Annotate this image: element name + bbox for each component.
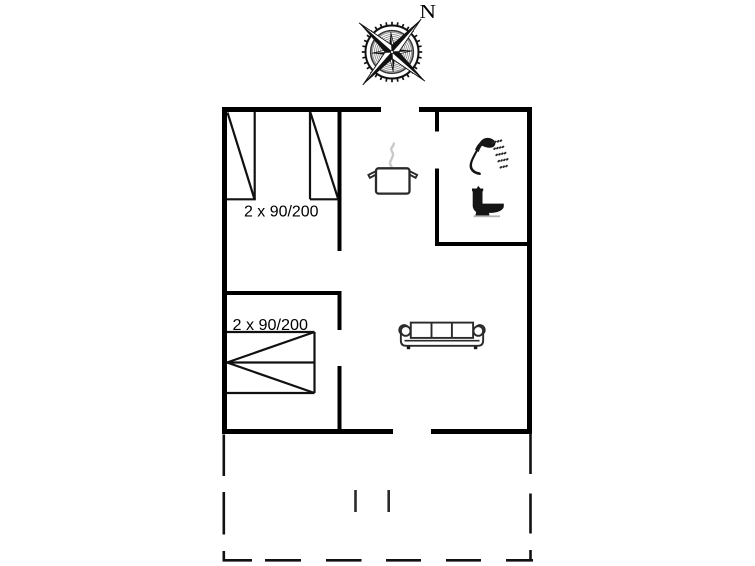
svg-text:2 x 90/200: 2 x 90/200: [233, 317, 309, 334]
svg-text:2 x 90/200: 2 x 90/200: [244, 204, 319, 221]
svg-text:N: N: [420, 1, 437, 23]
